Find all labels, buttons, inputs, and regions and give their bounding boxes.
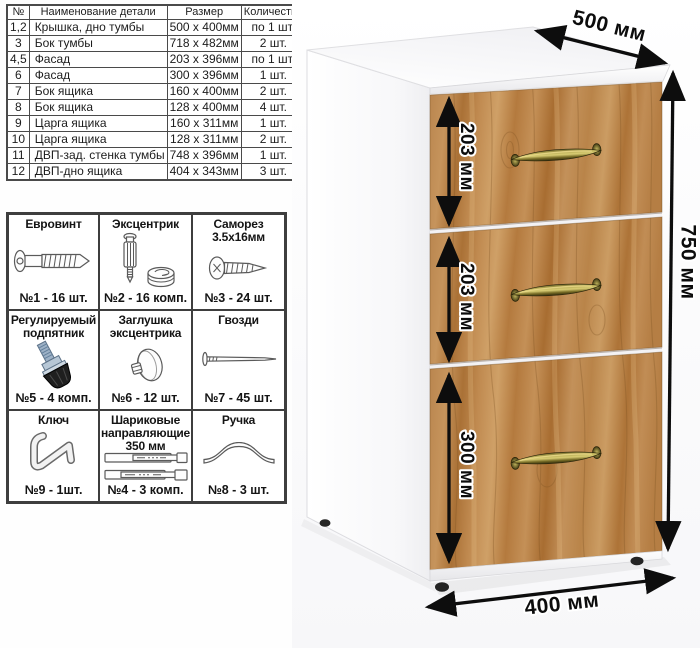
part-size: 500 x 400мм [167, 20, 241, 36]
hardware-count: №5 - 4 комп. [15, 391, 91, 405]
assembly-sheet: № Наименование детали Размер Количество … [0, 0, 700, 648]
part-size: 160 x 400мм [167, 84, 241, 100]
col-header-name: Наименование детали [29, 5, 167, 20]
part-name: Бок тумбы [29, 36, 167, 52]
part-size: 203 x 396мм [167, 52, 241, 68]
hardware-count: №6 - 12 шт. [111, 391, 179, 405]
part-name: Царга ящика [29, 116, 167, 132]
part-num: 9 [7, 116, 29, 132]
table-row: 3Бок тумбы718 x 482мм2 шт. [7, 36, 306, 52]
hardware-cell-excentrik: Эксцентрик №2 - 16 комп. [99, 214, 192, 310]
table-row: 11ДВП-зад. стенка тумбы748 x 396мм1 шт. [7, 148, 306, 164]
adjustable-foot-icon [25, 340, 83, 391]
part-size: 128 x 311мм [167, 132, 241, 148]
hardware-count: №9 - 1шт. [25, 483, 83, 497]
drawer-1-dimension-label: 203 мм [456, 123, 477, 191]
parts-table: № Наименование детали Размер Количество … [6, 4, 307, 181]
part-num: 12 [7, 164, 29, 181]
hardware-cell-zaglushka: Заглушка эксцентрика №6 - 12 шт. [99, 310, 192, 410]
part-name: Бок ящика [29, 100, 167, 116]
part-num: 7 [7, 84, 29, 100]
cabinet-foot [320, 519, 331, 527]
cabinet-foot [631, 557, 644, 566]
self-tapping-screw-icon [207, 244, 271, 291]
cabinet-left-panel [307, 50, 430, 581]
part-num: 4,5 [7, 52, 29, 68]
cabinet-illustration: 500 мм 750 мм 400 мм 203 мм 203 мм 300 м… [292, 0, 700, 648]
hardware-cell-klyuch: Ключ №9 - 1шт. [8, 410, 99, 502]
hardware-count: №2 - 16 комп. [104, 291, 187, 305]
table-row: 9Царга ящика160 x 311мм1 шт. [7, 116, 306, 132]
part-name: Царга ящика [29, 132, 167, 148]
hardware-title: Евровинт [25, 218, 81, 231]
hardware-title: Заглушка эксцентрика [102, 314, 189, 340]
cabinet-foot [435, 582, 449, 592]
hardware-cell-podpyatnik: Регулируемый подпятник №5 - 4 комп. [8, 310, 99, 410]
hardware-title: Эксцентрик [112, 218, 179, 231]
part-name: Бок ящика [29, 84, 167, 100]
hardware-count: №3 - 24 шт. [204, 291, 272, 305]
hardware-count: №1 - 16 шт. [19, 291, 87, 305]
hardware-cell-gvozdi: Гвозди №7 - 45 шт. [192, 310, 285, 410]
part-num: 8 [7, 100, 29, 116]
part-name: ДВП-зад. стенка тумбы [29, 148, 167, 164]
hardware-title: Регулируемый подпятник [11, 314, 96, 340]
part-size: 718 x 482мм [167, 36, 241, 52]
part-name: Фасад [29, 52, 167, 68]
hardware-title: Шариковые направляющие 350 мм [101, 414, 190, 454]
hardware-title: Ручка [222, 414, 255, 427]
hex-key-icon [21, 427, 87, 483]
table-row: 4,5Фасад203 x 396ммпо 1 шт. [7, 52, 306, 68]
nail-icon [199, 327, 279, 391]
part-num: 3 [7, 36, 29, 52]
hardware-count: №7 - 45 шт. [204, 391, 272, 405]
table-row: 8Бок ящика128 x 400мм4 шт. [7, 100, 306, 116]
col-header-num: № [7, 5, 29, 20]
table-row: 6Фасад300 x 396мм1 шт. [7, 68, 306, 84]
hardware-title: Саморез 3.5х16мм [195, 218, 282, 244]
cam-bolt-icon [113, 231, 179, 291]
hardware-title: Гвозди [218, 314, 259, 327]
part-size: 748 x 396мм [167, 148, 241, 164]
part-size: 404 x 343мм [167, 164, 241, 181]
part-size: 160 x 311мм [167, 116, 241, 132]
cam-cover-icon [124, 340, 168, 391]
table-row: 10Царга ящика128 x 311мм2 шт. [7, 132, 306, 148]
hardware-count: №4 - 3 комп. [107, 483, 183, 497]
part-name: Крышка, дно тумбы [29, 20, 167, 36]
table-row: 7Бок ящика160 x 400мм2 шт. [7, 84, 306, 100]
hardware-cell-eurovint: Евровинт №1 - 16 шт. [8, 214, 99, 310]
part-num: 1,2 [7, 20, 29, 36]
hardware-cell-napravlyayushchie: Шариковые направляющие 350 мм №4 - 3 ком… [99, 410, 192, 502]
part-name: Фасад [29, 68, 167, 84]
hardware-cell-samorez: Саморез 3.5х16мм №3 - 24 шт. [192, 214, 285, 310]
height-dimension-label: 750 мм [676, 225, 699, 300]
euro-screw-icon [13, 231, 95, 291]
part-num: 11 [7, 148, 29, 164]
part-size: 300 x 396мм [167, 68, 241, 84]
col-header-size: Размер [167, 5, 241, 20]
drawer-2-dimension-label: 203 мм [456, 263, 477, 331]
bow-handle-icon [199, 427, 279, 483]
hardware-grid: Евровинт №1 - 16 шт. Эксцентрик [6, 212, 287, 504]
table-header-row: № Наименование детали Размер Количество [7, 5, 306, 20]
drawer-3-dimension-label: 300 мм [456, 431, 477, 499]
part-num: 10 [7, 132, 29, 148]
part-size: 128 x 400мм [167, 100, 241, 116]
ball-slides-icon [103, 454, 189, 483]
part-num: 6 [7, 68, 29, 84]
hardware-title: Ключ [38, 414, 69, 427]
hardware-count: №8 - 3 шт. [208, 483, 269, 497]
part-name: ДВП-дно ящика [29, 164, 167, 181]
hardware-cell-ruchka: Ручка №8 - 3 шт. [192, 410, 285, 502]
table-row: 12ДВП-дно ящика404 x 343мм3 шт. [7, 164, 306, 181]
table-row: 1,2Крышка, дно тумбы500 x 400ммпо 1 шт. [7, 20, 306, 36]
